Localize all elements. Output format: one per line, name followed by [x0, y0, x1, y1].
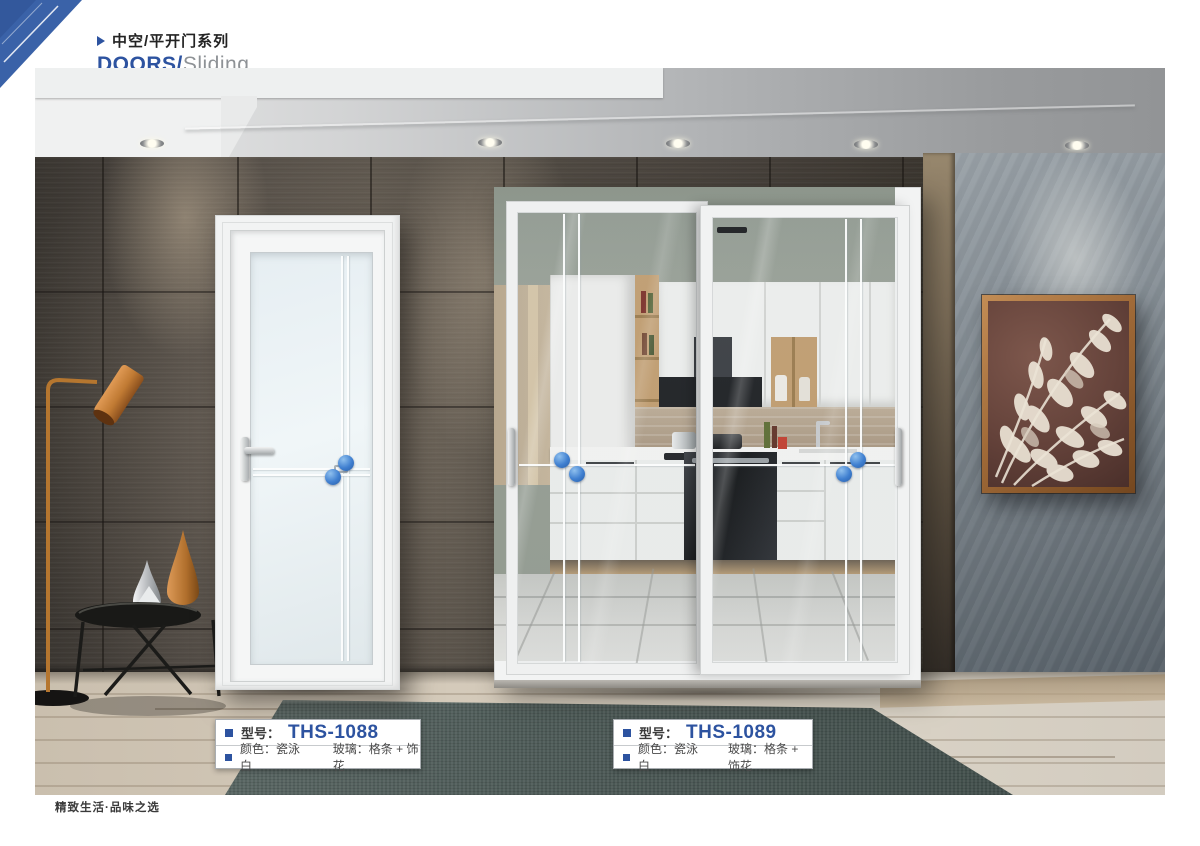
showroom-scene [35, 68, 1165, 795]
sliding-panel-right [701, 206, 909, 674]
artwork-canvas [988, 301, 1129, 487]
glass-ornament-icon [554, 452, 570, 468]
door-threshold [494, 680, 921, 688]
spec-card-ths-1088: 型号： THS-1088 颜色：瓷泳白 玻璃：格条 + 饰花 [215, 719, 421, 769]
color-spec: 颜色：瓷泳白 [638, 740, 700, 774]
catalog-page: 中空/平开门系列 DOORS/Sliding [0, 0, 1200, 846]
glass-spec: 玻璃：格条 + 饰花 [333, 740, 420, 774]
series-line: 中空/平开门系列 [97, 30, 249, 51]
spotlight-icon [140, 139, 164, 148]
copper-vase [167, 530, 199, 605]
glass-grid-line [563, 214, 565, 662]
sliding-door [494, 187, 921, 684]
footer-tagline: 精致生活·品味之选 [55, 799, 160, 815]
spotlight-icon [854, 140, 878, 149]
door-lock-detail [717, 227, 747, 233]
frosted-glass [250, 252, 373, 665]
color-spec: 颜色：瓷泳白 [240, 740, 304, 774]
ceiling-cove-band [35, 68, 663, 98]
glass-grid-line [253, 474, 370, 476]
spec-row: 颜色：瓷泳白 玻璃：格条 + 饰花 [614, 746, 812, 768]
bullet-icon [225, 729, 233, 737]
glass-spec: 玻璃：格条 + 饰花 [728, 740, 812, 774]
glass-ornament-icon [850, 452, 866, 468]
glass-grid-line [860, 219, 862, 661]
series-arrow-icon [97, 36, 105, 46]
glass-grid-line [578, 214, 580, 662]
sliding-handle [508, 428, 515, 486]
series-label: 中空/平开门系列 [112, 30, 229, 51]
glass-grid-line [714, 464, 896, 466]
spec-card-ths-1089: 型号： THS-1089 颜色：瓷泳白 玻璃：格条 + 饰花 [613, 719, 813, 769]
bullet-icon [623, 754, 630, 761]
wood-trim-column [923, 153, 955, 673]
sliding-handle [895, 428, 902, 486]
single-door [215, 215, 400, 690]
bullet-icon [623, 729, 631, 737]
glass-ornament-icon [325, 469, 341, 485]
leaf-painting-icon [988, 301, 1129, 487]
glass-ornament-icon [836, 466, 852, 482]
glass-grid-line [519, 464, 695, 466]
spotlight-icon [1065, 141, 1089, 150]
spotlight-icon [666, 139, 690, 148]
wall-artwork [982, 295, 1135, 493]
glass-ornament-icon [569, 466, 585, 482]
door-handle-plate [241, 437, 249, 481]
glass-grid-line [845, 219, 847, 661]
spec-row: 颜色：瓷泳白 玻璃：格条 + 饰花 [216, 746, 420, 768]
sliding-panel-left [507, 202, 707, 674]
spotlight-icon [478, 138, 502, 147]
door-handle [244, 447, 274, 454]
bullet-icon [225, 754, 232, 761]
glass-ornament-icon [338, 455, 354, 471]
glass-grid-line [253, 468, 370, 470]
